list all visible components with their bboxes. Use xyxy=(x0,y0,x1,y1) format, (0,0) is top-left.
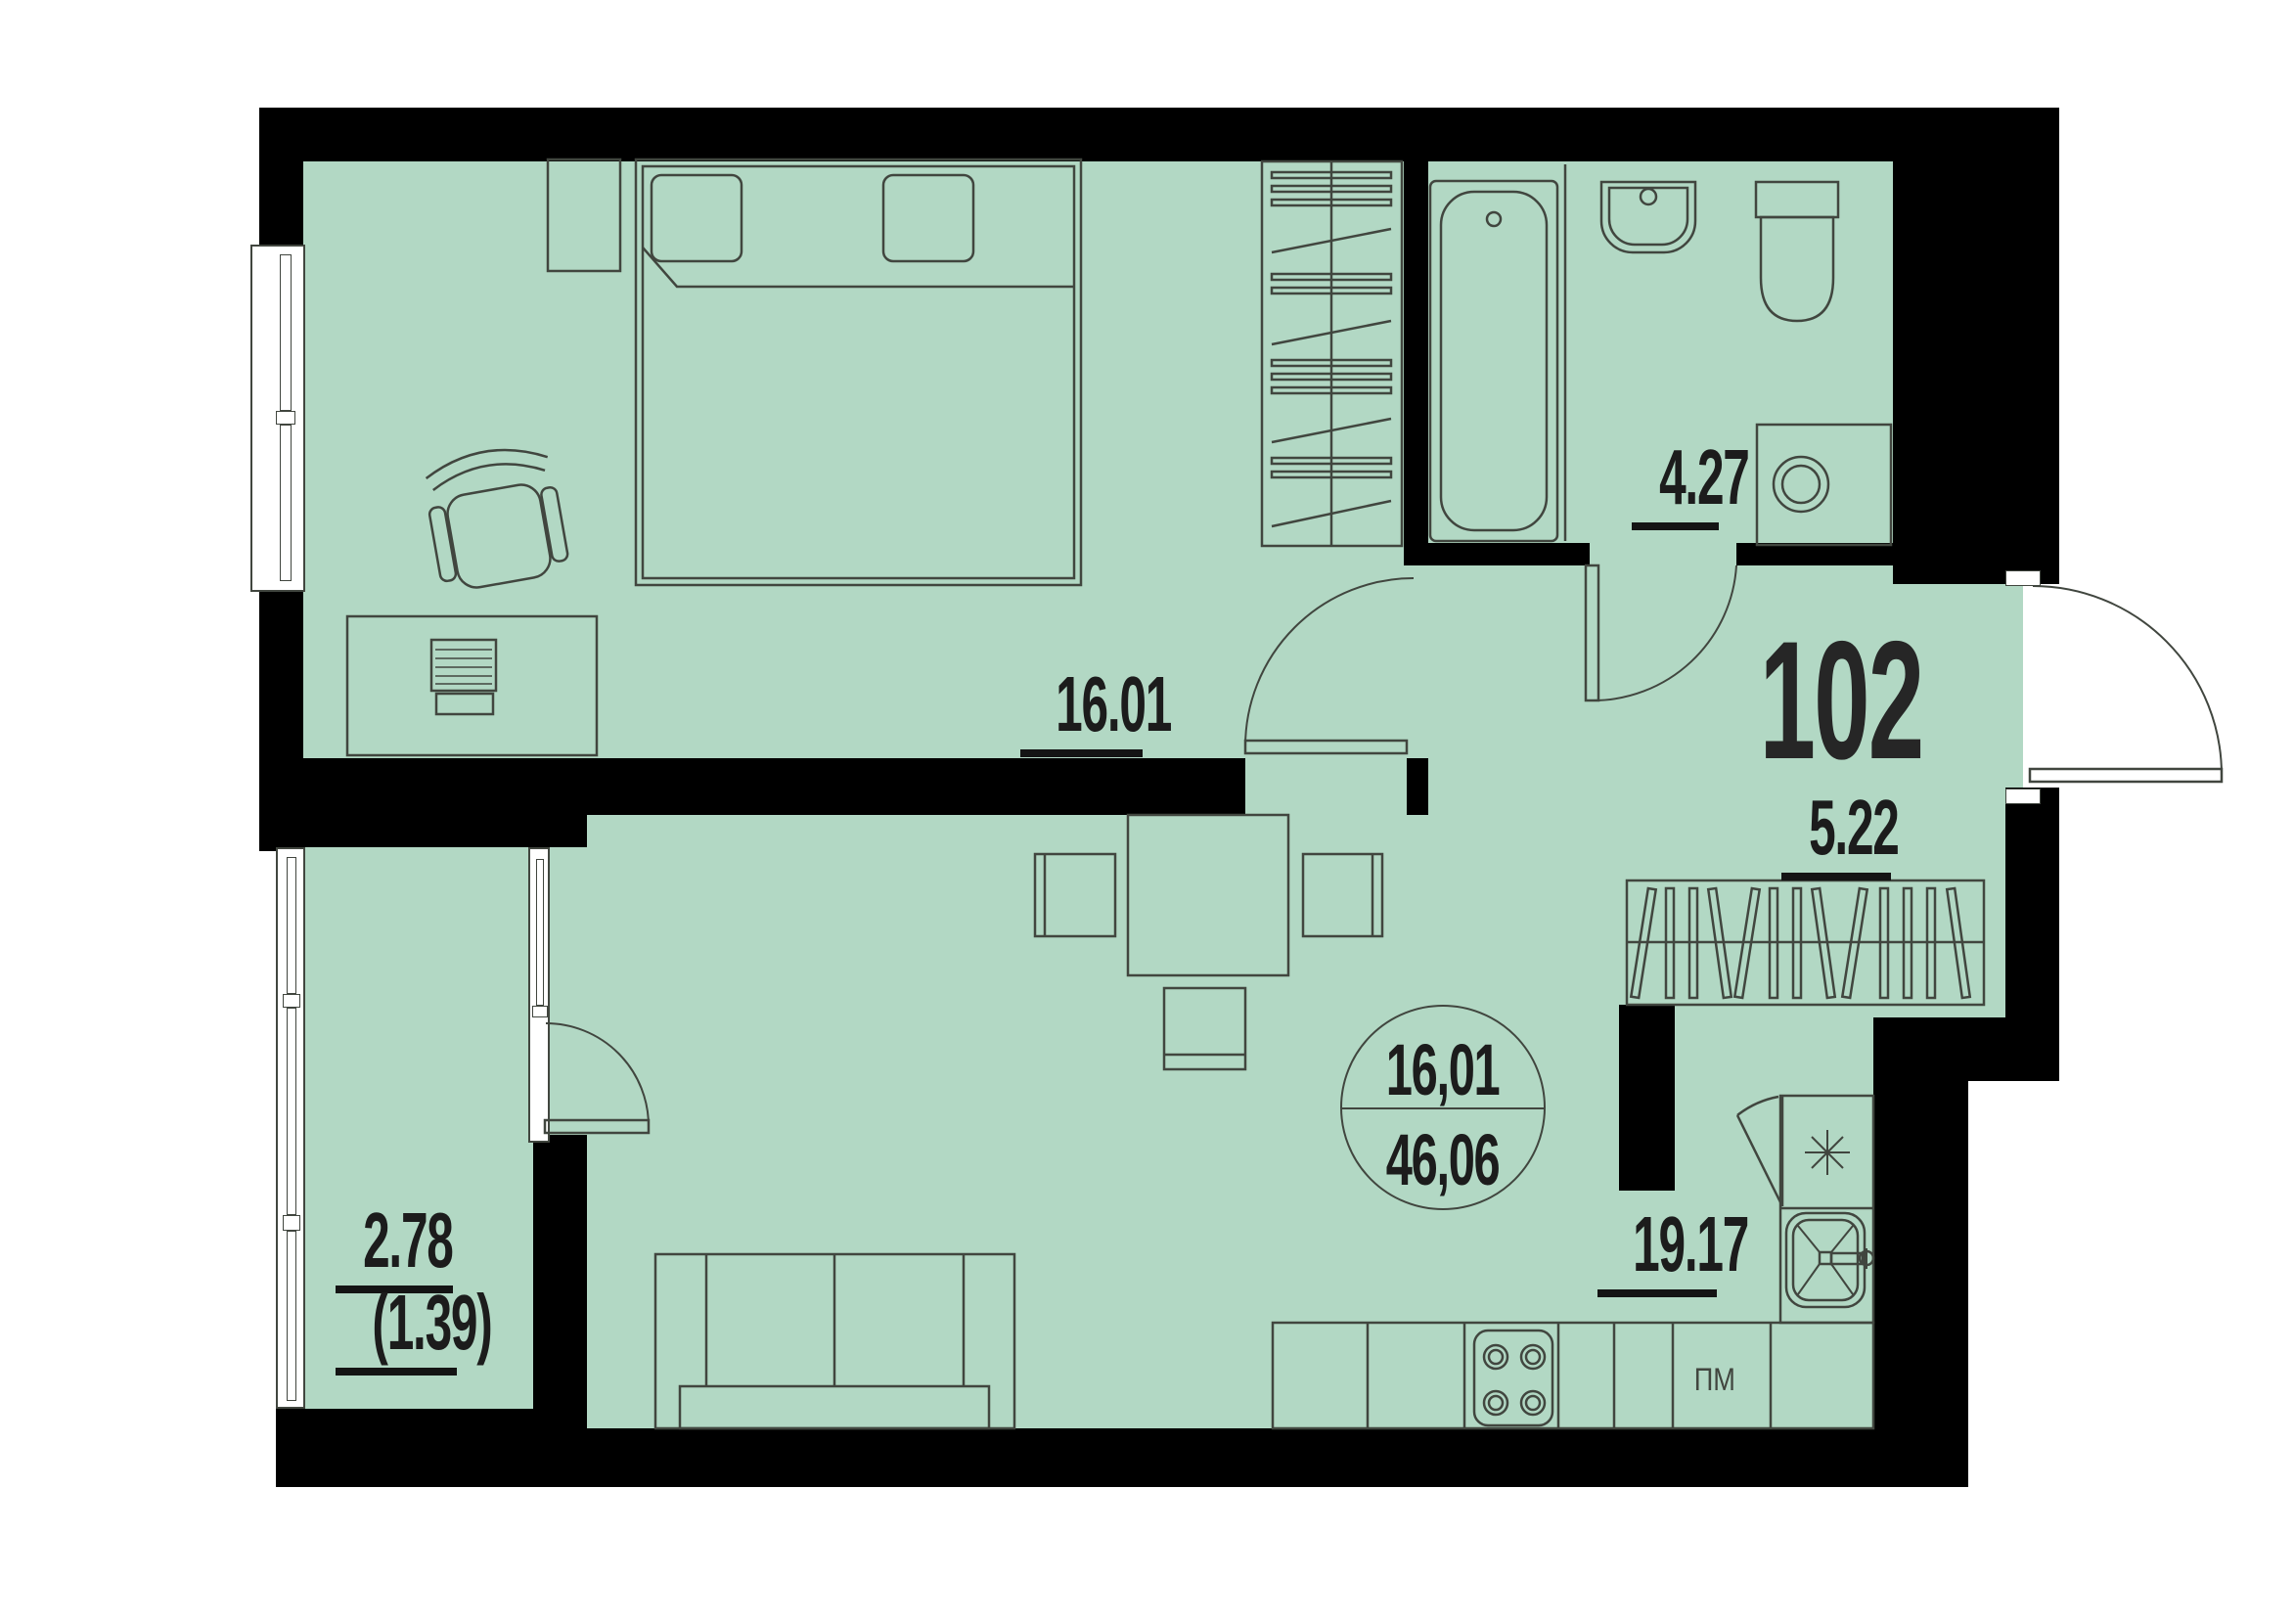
hallway-area-label: 5.22 xyxy=(1781,789,1891,880)
hallway-wardrobe xyxy=(1627,880,1984,1005)
blanket-fold xyxy=(643,248,1074,287)
balcony-area-reduced-label: (1.39) xyxy=(336,1284,457,1376)
bathroom-sink xyxy=(1601,182,1695,252)
bed xyxy=(636,159,1081,585)
furniture-layer xyxy=(0,0,2294,1624)
pillow-right xyxy=(883,175,973,261)
sofa xyxy=(655,1254,1014,1428)
entrance-door xyxy=(2030,586,2222,782)
bed-inner xyxy=(643,166,1074,578)
dining-table xyxy=(1128,815,1288,975)
nightstand xyxy=(548,159,620,271)
bathroom-area-label: 4.27 xyxy=(1632,438,1719,530)
dishwasher-label: ПМ xyxy=(1685,1364,1745,1395)
floor-plan: 16.01 4.27 5.22 19.17 2.78 (1.39) 102 16… xyxy=(0,0,2294,1624)
kitchen-counter-bottom xyxy=(1273,1323,1873,1428)
desk-chair xyxy=(421,440,571,593)
bedroom-door xyxy=(1245,578,1414,753)
kitchen-living-area-label: 19.17 xyxy=(1597,1205,1717,1297)
dining-chair-bottom xyxy=(1164,988,1245,1069)
balcony-door xyxy=(545,1023,649,1133)
total-area-value: 46,06 xyxy=(1342,1124,1544,1196)
desk xyxy=(347,616,597,755)
pillow-left xyxy=(652,175,742,261)
bathtub xyxy=(1430,181,1557,541)
dining-chair-right xyxy=(1303,854,1382,936)
fridge xyxy=(1737,1096,1850,1206)
living-area-value: 16,01 xyxy=(1342,1034,1544,1106)
dining-chair-left xyxy=(1035,854,1115,936)
toilet xyxy=(1756,182,1838,321)
kitchen-sink xyxy=(1786,1213,1873,1307)
bedroom-area-label: 16.01 xyxy=(1020,665,1143,757)
washing-machine xyxy=(1757,425,1891,545)
area-summary-circle: 16,01 46,06 xyxy=(1340,1005,1546,1210)
laptop xyxy=(431,640,496,714)
fridge-asterisk xyxy=(1805,1130,1850,1175)
apartment-number: 102 xyxy=(1705,616,1940,785)
bedroom-wardrobe xyxy=(1262,161,1402,546)
stove xyxy=(1474,1331,1552,1425)
circle-divider xyxy=(1342,1107,1544,1109)
